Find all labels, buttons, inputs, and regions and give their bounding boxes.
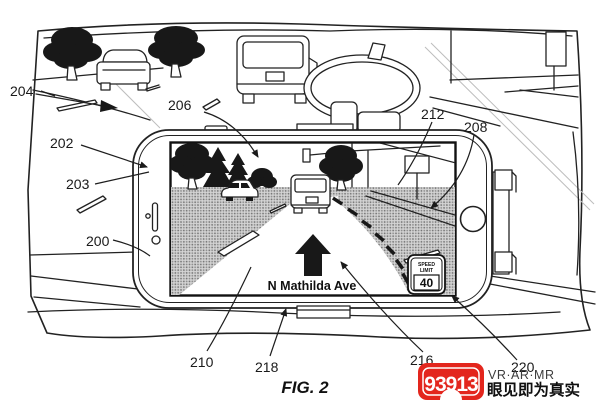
dock-tab xyxy=(297,306,350,318)
ref-label-206: 206 xyxy=(168,97,192,113)
watermark-logo-text: 93913 xyxy=(424,373,478,396)
road-stripe xyxy=(203,99,220,110)
dashboard-line xyxy=(31,276,138,289)
dashboard-line xyxy=(490,284,595,304)
leader-218 xyxy=(270,309,286,356)
figure-caption: FIG. 2 xyxy=(281,378,329,397)
speed-limit-sign: SPEED LIMIT 40 xyxy=(404,250,445,294)
road-marking-arrow xyxy=(36,94,118,112)
patent-figure-page: N Mathilda Ave SPEED LIMIT 40 204 202 20… xyxy=(0,0,600,410)
screen-van-icon xyxy=(291,175,330,213)
ref-label-218: 218 xyxy=(255,359,279,375)
ref-label-204: 204 xyxy=(10,83,34,99)
dashboard-line xyxy=(30,252,137,255)
mount-clamp xyxy=(495,252,512,272)
speed-sign-value: 40 xyxy=(420,276,434,290)
ref-label-210: 210 xyxy=(190,354,214,370)
ref-label-212: 212 xyxy=(421,106,445,122)
speed-sign-word2: LIMIT xyxy=(420,268,433,274)
phone-mount xyxy=(493,170,516,274)
road-stripe xyxy=(77,196,106,213)
road-dash xyxy=(146,85,160,91)
steering-wheel-icon xyxy=(297,43,420,135)
horizon-line xyxy=(44,29,572,38)
ref-label-202: 202 xyxy=(50,135,74,151)
dashboard-line xyxy=(490,276,595,292)
dashboard-line xyxy=(573,132,579,275)
dashboard-line xyxy=(28,309,560,316)
mount-clamp xyxy=(495,170,512,190)
watermark-tagline: VR·AR·MR xyxy=(488,368,555,382)
ref-label-208: 208 xyxy=(464,119,488,135)
watermark: 93913 VR·AR·MR 眼见即为真实 xyxy=(418,363,580,400)
ref-label-203: 203 xyxy=(66,176,90,192)
street-name-label: N Mathilda Ave xyxy=(268,279,357,293)
background-car-icon xyxy=(97,50,150,90)
right-window-scene xyxy=(430,31,578,128)
ref-label-200: 200 xyxy=(86,233,110,249)
hanging-sign-icon xyxy=(546,32,566,66)
background-tree-icon xyxy=(43,27,102,69)
dashboard-line xyxy=(34,297,140,307)
watermark-slogan: 眼见即为真实 xyxy=(487,380,580,399)
patent-drawing: N Mathilda Ave SPEED LIMIT 40 204 202 20… xyxy=(0,0,600,410)
